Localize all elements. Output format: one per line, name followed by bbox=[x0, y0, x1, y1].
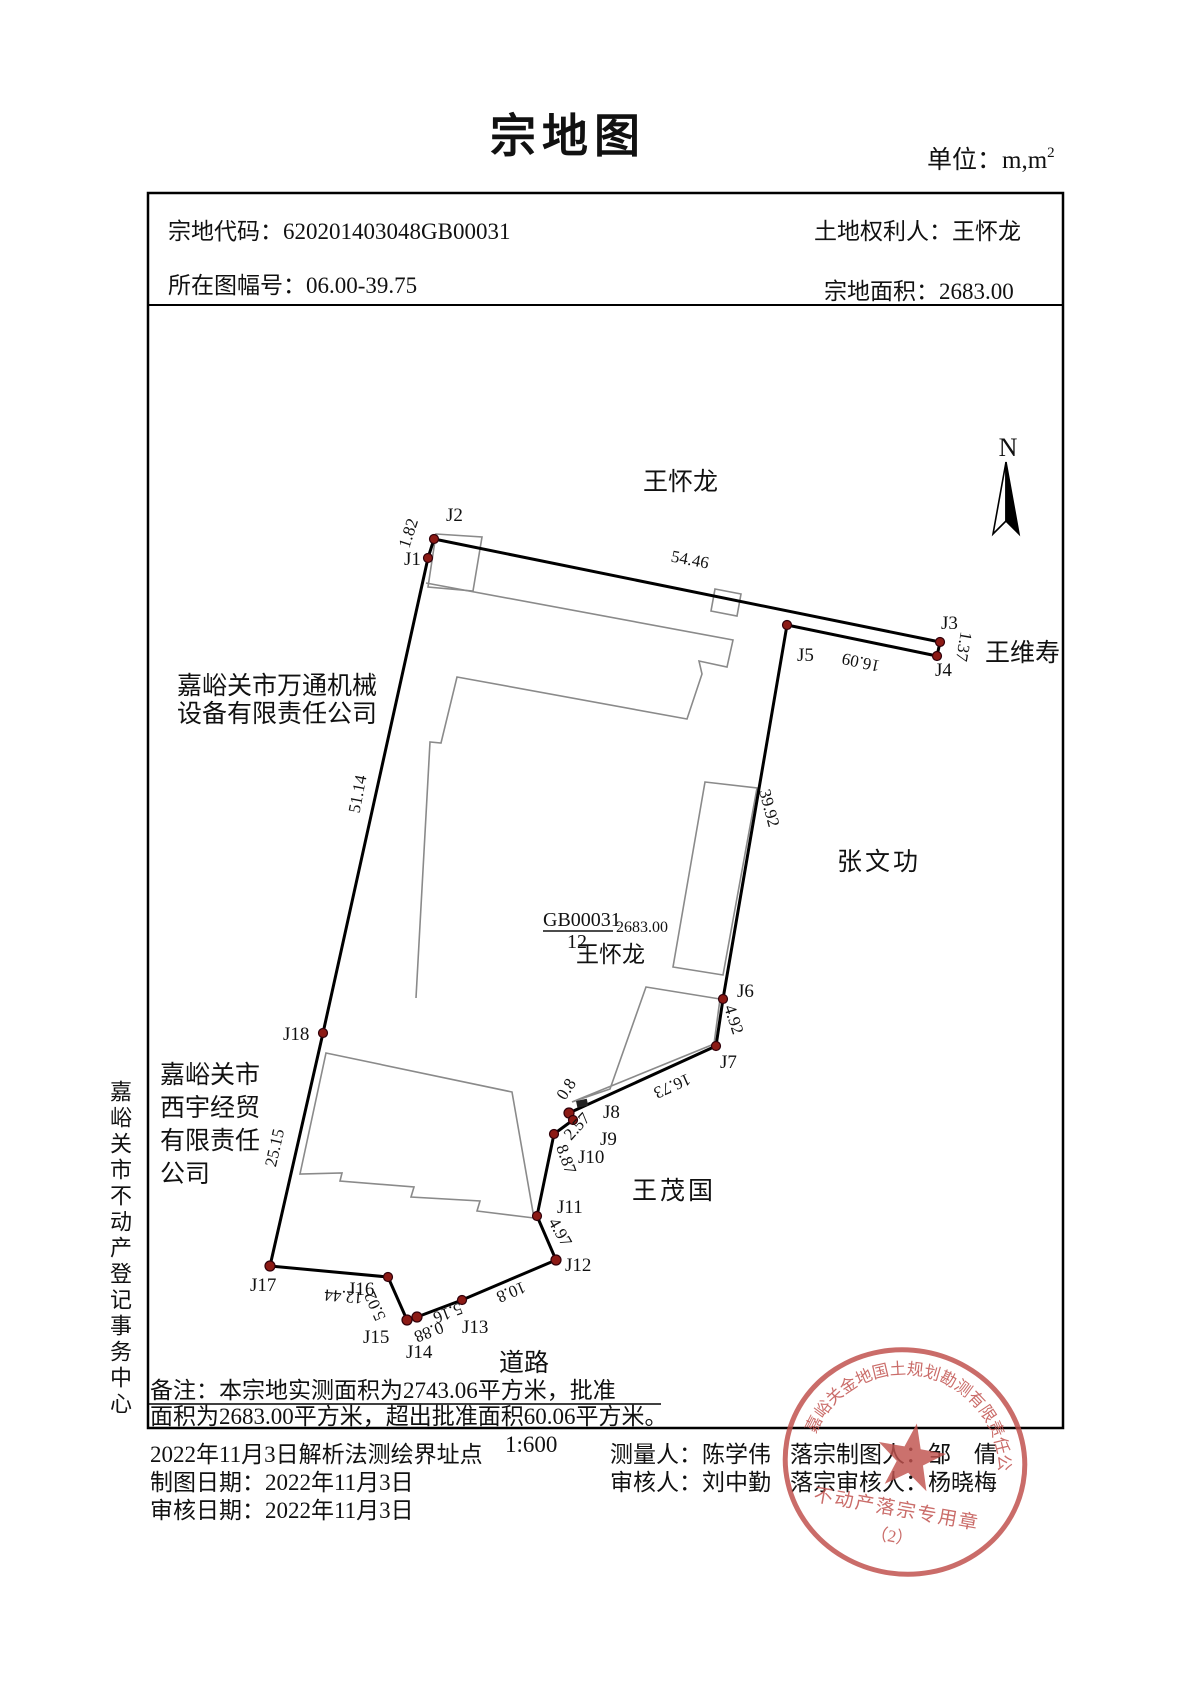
point-label-j12: J12 bbox=[565, 1255, 591, 1276]
distance-j4-j5: 16.09 bbox=[840, 649, 881, 676]
point-label-j1: J1 bbox=[404, 549, 421, 570]
review-date-field: 审核日期：2022年11月3日 bbox=[150, 1498, 414, 1523]
distance-j17-j18: 25.15 bbox=[261, 1127, 288, 1169]
road-label: 道路 bbox=[499, 1349, 549, 1377]
parcel-map-canvas: 宗地图 单位：m,m2 宗地代码：620201403048GB00031 土地权… bbox=[0, 0, 1200, 1697]
parcel-owner-center: 王怀龙 bbox=[576, 942, 645, 967]
seal-number-text: （2） bbox=[869, 1523, 914, 1549]
surveyor-field: 测量人：陈学伟 bbox=[610, 1442, 771, 1467]
parcel-code-center: GB00031 bbox=[543, 909, 621, 931]
boundary-point-j7 bbox=[712, 1042, 721, 1051]
point-label-j5: J5 bbox=[797, 645, 814, 666]
boundary-point-j10 bbox=[550, 1130, 559, 1139]
distance-j1-j2: 1.82 bbox=[395, 516, 422, 550]
point-label-j4: J4 bbox=[935, 660, 952, 681]
point-label-j13: J13 bbox=[462, 1317, 488, 1338]
registration-center-vertical-label: 嘉峪关市不动产登记事务中心 bbox=[103, 1080, 135, 1418]
point-label-j10: J10 bbox=[578, 1147, 604, 1168]
neighbor-top: 王怀龙 bbox=[643, 468, 718, 496]
boundary-point-j5 bbox=[783, 621, 792, 630]
map-sheet-field: 所在图幅号：06.00-39.75 bbox=[168, 273, 417, 298]
point-label-j3: J3 bbox=[941, 613, 958, 634]
survey-note: 2022年11月3日解析法测绘界址点 bbox=[150, 1442, 483, 1467]
boundary-point-j11 bbox=[533, 1212, 542, 1221]
map-frame bbox=[148, 193, 1063, 1428]
neighbor-right: 张文功 bbox=[837, 848, 921, 876]
boundary-point-labels: J1 J2 J3 J4 J5 J6 J7 J8 J9 J10 J11 J12 J… bbox=[250, 505, 958, 1363]
boundary-point-j16 bbox=[384, 1273, 393, 1282]
boundary-point-j17 bbox=[265, 1261, 275, 1271]
distance-j10-j11: 8.87 bbox=[552, 1142, 580, 1177]
parcel-center-label: GB00031 12 2683.00 王怀龙 bbox=[543, 909, 668, 967]
point-label-j2: J2 bbox=[446, 505, 463, 526]
reviewer-field: 审核人：刘中勤 bbox=[610, 1470, 771, 1495]
page-title: 宗地图 bbox=[490, 110, 646, 162]
note-line1: 备注：本宗地实测面积为2743.06平方米，批准 bbox=[150, 1378, 616, 1403]
parcel-map-page: 宗地图 单位：m,m2 宗地代码：620201403048GB00031 土地权… bbox=[0, 0, 1200, 1697]
boundary-point-j2 bbox=[430, 535, 439, 544]
distance-j18-j1: 51.14 bbox=[345, 773, 371, 815]
neighbor-left2-line2: 西宇经贸 bbox=[160, 1094, 260, 1122]
point-label-j8: J8 bbox=[603, 1102, 620, 1123]
point-label-j15: J15 bbox=[363, 1327, 389, 1348]
distance-j2-j3: 54.46 bbox=[669, 547, 710, 573]
boundary-point-j15 bbox=[402, 1315, 412, 1325]
point-label-j6: J6 bbox=[737, 981, 754, 1002]
point-label-j18: J18 bbox=[283, 1024, 309, 1045]
parcel-area-field: 宗地面积：2683.00 bbox=[824, 279, 1014, 304]
point-label-j7: J7 bbox=[720, 1052, 737, 1073]
building-outline bbox=[711, 589, 741, 616]
boundary-point-j14 bbox=[412, 1312, 422, 1322]
parcel-code-field: 宗地代码：620201403048GB00031 bbox=[168, 219, 510, 244]
distance-j5-j6: 39.92 bbox=[755, 787, 783, 829]
neighbor-left2-line3: 有限责任 bbox=[160, 1127, 260, 1155]
distance-j8-j9: 0.8 bbox=[552, 1075, 580, 1103]
boundary-point-j12 bbox=[551, 1255, 561, 1265]
distance-j12-j13: 10.8 bbox=[494, 1278, 529, 1307]
north-arrow-right-half bbox=[1006, 462, 1019, 534]
neighbor-left-company-line2: 设备有限责任公司 bbox=[177, 700, 377, 728]
boundary-point-j3 bbox=[936, 638, 945, 647]
neighbor-left-company-line1: 嘉峪关市万通机械 bbox=[177, 672, 377, 700]
note-line2: 面积为2683.00平方米，超出批准面积60.06平方米。 bbox=[150, 1404, 668, 1429]
building-outline bbox=[572, 987, 720, 1102]
boundary-point-j6 bbox=[719, 995, 728, 1004]
boundary-point-j1 bbox=[424, 554, 433, 563]
distance-j3-j4: 1.37 bbox=[952, 630, 976, 663]
neighbor-right-top: 王维寿 bbox=[985, 639, 1060, 667]
distance-j6-j7: 4.92 bbox=[720, 1002, 747, 1036]
distance-j16-j17: 12.44 bbox=[323, 1285, 363, 1307]
building-outlines bbox=[300, 534, 757, 1218]
north-label: N bbox=[999, 433, 1018, 462]
draw-date-field: 制图日期：2022年11月3日 bbox=[150, 1470, 414, 1495]
north-arrow: N bbox=[993, 433, 1019, 534]
neighbor-left2-line4: 公司 bbox=[160, 1161, 210, 1188]
building-outline bbox=[300, 1053, 534, 1218]
parcel-area-center: 2683.00 bbox=[616, 919, 668, 936]
north-arrow-left-half bbox=[993, 462, 1006, 534]
point-label-j17: J17 bbox=[250, 1275, 276, 1296]
owner-field: 土地权利人：王怀龙 bbox=[814, 219, 1021, 244]
neighbor-bottom-right: 王茂国 bbox=[632, 1177, 716, 1205]
neighbor-left2-line1: 嘉峪关市 bbox=[160, 1061, 260, 1089]
scale-label: 1:600 bbox=[505, 1432, 557, 1457]
boundary-point-j18 bbox=[319, 1029, 328, 1038]
unit-label: 单位：m,m2 bbox=[927, 145, 1055, 174]
distance-j7-j8: 16.73 bbox=[651, 1070, 694, 1103]
